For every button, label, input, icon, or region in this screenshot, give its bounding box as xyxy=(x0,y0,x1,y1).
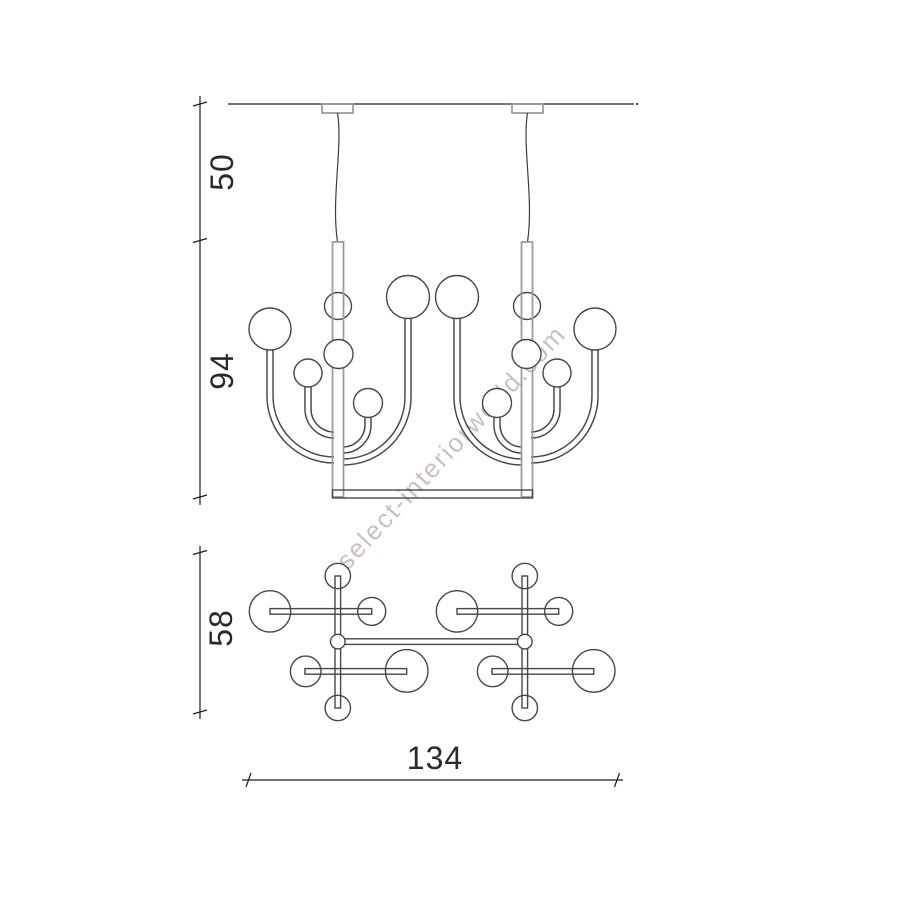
globe xyxy=(543,359,571,387)
dim-label-plan-width: 134 xyxy=(407,740,463,776)
globe xyxy=(354,389,383,418)
technical-drawing-page: select-interiorworld.com 50 94 58 134 xyxy=(0,0,900,900)
elevation-cluster-left xyxy=(249,242,430,497)
canopy-right xyxy=(512,104,543,113)
dim-label-plan-depth: 58 xyxy=(203,609,239,647)
arm xyxy=(531,387,557,436)
frame-bar xyxy=(333,490,533,498)
chandelier-dimension-drawing: select-interiorworld.com 50 94 58 134 xyxy=(0,0,900,900)
stem-globe-mid xyxy=(324,340,353,369)
plan-stem-joint xyxy=(518,634,533,649)
arm xyxy=(343,318,408,463)
plan-view xyxy=(249,563,615,720)
dim-label-body-height: 94 xyxy=(204,352,240,390)
globe xyxy=(387,276,430,319)
suspension-wire-left xyxy=(336,113,339,242)
arm-inner xyxy=(343,318,408,463)
plan-stem-joint xyxy=(331,634,346,649)
dim-label-suspension-height: 50 xyxy=(204,153,240,191)
plan-arm-bar xyxy=(457,609,559,615)
globe xyxy=(249,308,291,350)
plan-globe xyxy=(290,656,321,687)
arm xyxy=(308,387,334,436)
plan-connector-bar xyxy=(338,639,525,645)
plan-globe xyxy=(477,656,508,687)
globe xyxy=(483,389,512,418)
canopy-left xyxy=(322,104,353,113)
dimension-annotations: 50 94 58 134 xyxy=(193,96,623,787)
stem-left xyxy=(333,242,344,497)
stem-globe-upper xyxy=(514,293,541,320)
globe xyxy=(436,276,479,319)
ceiling-line-end-dot xyxy=(636,103,638,105)
stem-globe-upper xyxy=(325,293,352,320)
plan-arm-bar xyxy=(270,609,372,615)
globe xyxy=(574,308,616,350)
globe xyxy=(294,359,322,387)
suspension-wire-right xyxy=(526,113,529,242)
stem-globe-mid xyxy=(512,340,541,369)
elevation-view xyxy=(228,103,638,498)
